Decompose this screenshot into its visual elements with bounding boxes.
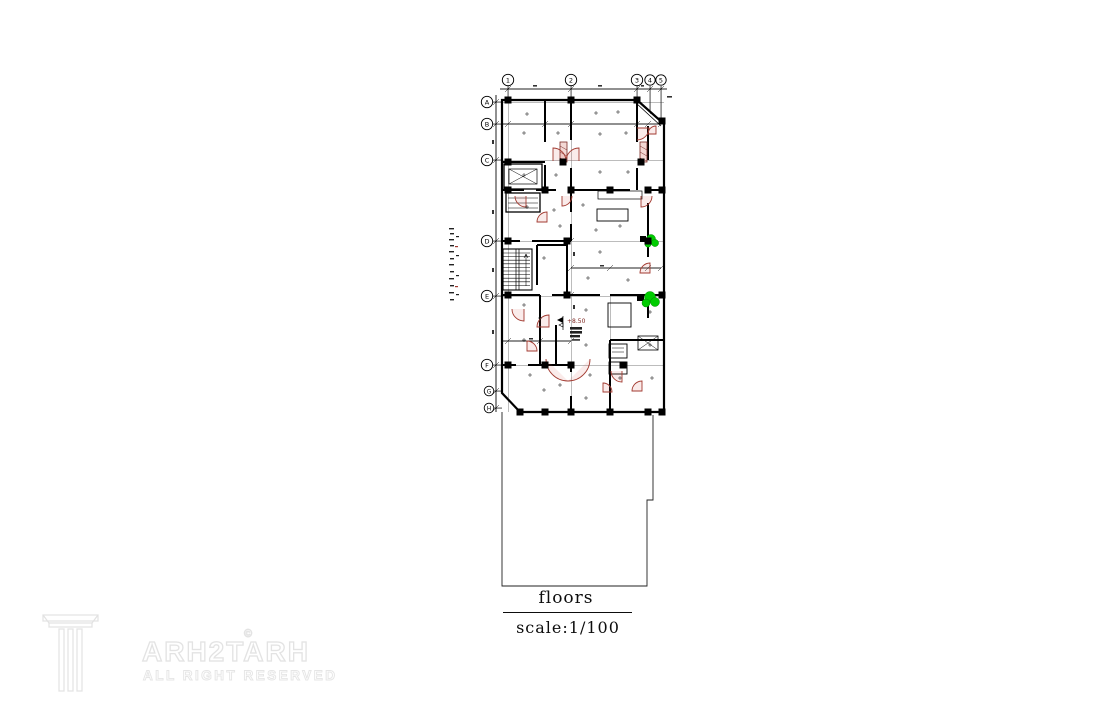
level-marker: +8.50 [557,316,586,341]
grid-label-F: F [485,362,489,370]
grid-label-E: E [485,293,489,301]
copyright-icon: © [244,628,252,640]
grid-label-D: D [484,238,489,246]
grid-label-3: 3 [635,77,639,85]
grid-label-5: 5 [659,77,663,85]
title-underline [503,612,632,613]
vertical-dimension-text-column [449,228,459,300]
column-pillar-icon [42,612,102,700]
grid-label-G: G [487,389,492,395]
grid-label-2: 2 [569,77,573,85]
drawing-title: floors [500,588,632,608]
room-marks [522,110,654,400]
watermark-tagline: ALL RIGHT RESERVED [143,668,338,683]
door-swing-arcs [512,126,656,392]
lot-boundary [502,412,653,586]
grid-label-C: C [485,157,490,165]
watermark-brand-text: ARH2TARH [142,636,310,668]
drawing-sheet: +8.50 1 2 3 4 5 A [0,0,1103,714]
watermark: ARH2TARH © ALL RIGHT RESERVED [42,612,272,707]
staircase [503,249,532,290]
grid-bubbles-left: A B C D E F G H [481,96,502,413]
grid-label-H: H [487,406,491,412]
grid-label-1: 1 [506,77,510,85]
level-marker-value: +8.50 [567,318,586,325]
grid-label-A: A [485,99,490,107]
drawing-scale: scale:1/100 [498,618,638,637]
grid-label-B: B [485,121,489,129]
grid-label-4: 4 [648,77,652,85]
